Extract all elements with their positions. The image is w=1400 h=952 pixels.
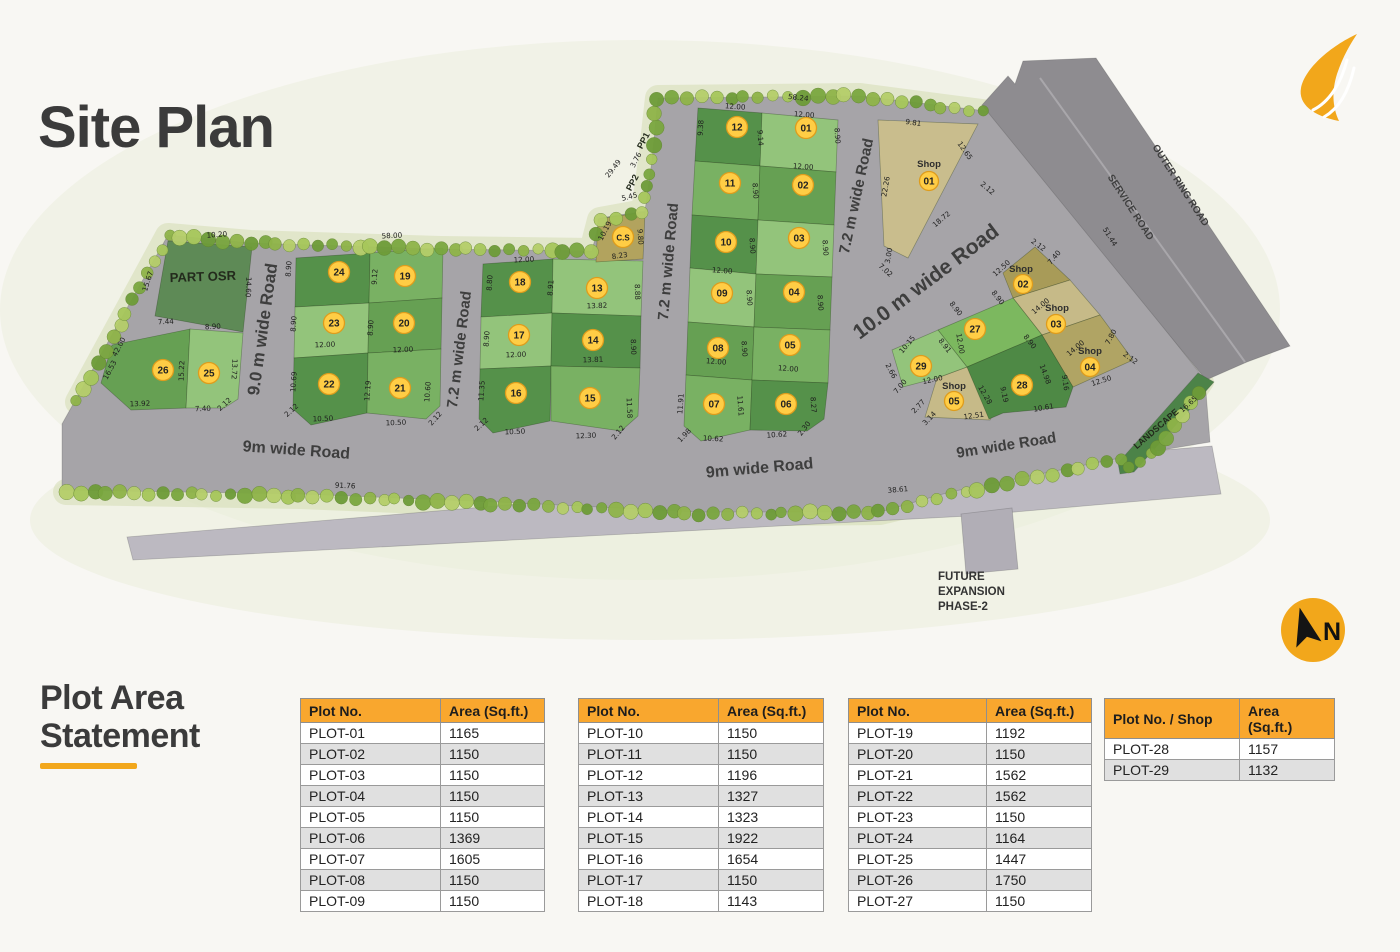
tree-icon bbox=[810, 88, 825, 103]
plot-12 bbox=[695, 108, 762, 166]
north-indicator: N bbox=[1281, 598, 1345, 662]
tree-icon bbox=[677, 507, 691, 521]
area-cell: 1150 bbox=[441, 786, 545, 807]
tree-icon bbox=[362, 239, 377, 254]
plot-no-cell: PLOT-09 bbox=[301, 891, 441, 912]
plot-marker-plot-01: 01 bbox=[796, 118, 817, 139]
dimension-label: 58.00 bbox=[381, 230, 402, 240]
col-header-plot-no: Plot No. bbox=[849, 699, 987, 723]
tree-icon bbox=[692, 509, 705, 522]
plot-no-cell: PLOT-05 bbox=[301, 807, 441, 828]
future-expansion-label: FUTURE bbox=[938, 571, 985, 583]
plot-marker-shop-03: 03 bbox=[1047, 315, 1066, 334]
tree-icon bbox=[776, 507, 787, 518]
area-cell: 1150 bbox=[441, 807, 545, 828]
tree-icon bbox=[533, 244, 544, 255]
col-header-area: Area (Sq.ft.) bbox=[441, 699, 545, 723]
shop-label: Shop bbox=[1078, 346, 1102, 357]
table-row: PLOT-101150 bbox=[579, 723, 824, 744]
tree-icon bbox=[377, 241, 392, 256]
page-title: Site Plan bbox=[38, 94, 274, 161]
table-row: PLOT-011165 bbox=[301, 723, 545, 744]
tree-icon bbox=[1071, 462, 1084, 475]
tree-icon bbox=[444, 495, 459, 510]
tree-icon bbox=[984, 478, 999, 493]
plot-marker-plot-12: 12 bbox=[727, 117, 748, 138]
plot-number-text: 13 bbox=[591, 283, 603, 294]
area-cell: 1562 bbox=[987, 786, 1092, 807]
tree-icon bbox=[572, 501, 583, 512]
plot-number-text: 01 bbox=[800, 123, 812, 134]
tree-icon bbox=[969, 483, 985, 499]
plot-no-cell: PLOT-25 bbox=[849, 849, 987, 870]
plot-no-cell: PLOT-08 bbox=[301, 870, 441, 891]
tree-icon bbox=[306, 491, 320, 505]
plot-number-text: 02 bbox=[797, 180, 809, 191]
table-row: PLOT-261750 bbox=[849, 870, 1092, 891]
plot-no-cell: PLOT-29 bbox=[1105, 760, 1240, 781]
area-cell: 1196 bbox=[719, 765, 824, 786]
col-header-area: Area (Sq.ft.) bbox=[719, 699, 824, 723]
plot-no-cell: PLOT-19 bbox=[849, 723, 987, 744]
dimension-label: 14.60 bbox=[244, 277, 254, 298]
plot-number-text: 17 bbox=[513, 330, 525, 341]
tree-icon bbox=[569, 243, 584, 258]
tree-icon bbox=[267, 488, 282, 503]
dimension-label: 13.81 bbox=[582, 355, 603, 365]
tree-icon bbox=[149, 256, 161, 268]
plot-marker-plot-cs: C.S bbox=[613, 227, 634, 248]
tree-icon bbox=[737, 90, 749, 102]
table-row: PLOT-281157 bbox=[1105, 739, 1335, 760]
tree-icon bbox=[680, 92, 694, 106]
tree-icon bbox=[542, 500, 554, 512]
dimension-label: 91.76 bbox=[335, 480, 356, 490]
col-header-plot-no: Plot No. / Shop bbox=[1105, 699, 1240, 739]
shop-label: Shop bbox=[1009, 264, 1033, 275]
logo-leaf-shape bbox=[1301, 34, 1357, 121]
tree-icon bbox=[245, 237, 259, 251]
table-row: PLOT-141323 bbox=[579, 807, 824, 828]
plot-area-statement: Plot Area Statement bbox=[40, 679, 275, 769]
tree-icon bbox=[934, 102, 946, 114]
tree-icon bbox=[978, 106, 989, 117]
plot-marker-plot-03: 03 bbox=[789, 228, 810, 249]
tree-icon bbox=[946, 488, 957, 499]
plot-no-cell: PLOT-12 bbox=[579, 765, 719, 786]
tree-icon bbox=[638, 503, 653, 518]
plot-area-table-2: Plot No.Area (Sq.ft.)PLOT-101150PLOT-111… bbox=[578, 698, 824, 912]
plot-number-text: C.S bbox=[616, 233, 630, 242]
dimension-label: 8.90 bbox=[205, 322, 222, 332]
area-cell: 1150 bbox=[441, 891, 545, 912]
tree-icon bbox=[1046, 469, 1060, 483]
plot-marker-plot-15: 15 bbox=[580, 388, 601, 409]
plot-number-text: 11 bbox=[725, 178, 736, 189]
plot-marker-plot-28: 28 bbox=[1012, 375, 1033, 396]
tree-icon bbox=[852, 89, 866, 103]
tree-icon bbox=[1159, 431, 1174, 446]
tree-icon bbox=[695, 90, 708, 103]
dimension-label: 8.90 bbox=[629, 339, 639, 356]
tree-icon bbox=[225, 489, 236, 500]
area-cell: 1922 bbox=[719, 828, 824, 849]
tree-icon bbox=[528, 498, 541, 511]
area-cell: 1150 bbox=[441, 765, 545, 786]
plot-marker-plot-04: 04 bbox=[784, 282, 805, 303]
tree-icon bbox=[403, 495, 414, 506]
tree-icon bbox=[886, 502, 899, 515]
shop-label: Shop bbox=[1045, 303, 1069, 314]
dimension-label: 8.90 bbox=[747, 238, 757, 255]
tree-icon bbox=[237, 488, 253, 504]
tree-icon bbox=[210, 490, 221, 501]
dimension-label: 8.90 bbox=[365, 319, 375, 336]
tree-icon bbox=[320, 489, 333, 502]
tree-icon bbox=[847, 505, 861, 519]
tree-icon bbox=[555, 244, 570, 259]
table-row: PLOT-201150 bbox=[849, 744, 1092, 765]
plot-no-cell: PLOT-18 bbox=[579, 891, 719, 912]
tree-icon bbox=[503, 244, 514, 255]
tree-icon bbox=[665, 90, 679, 104]
plot-no-cell: PLOT-27 bbox=[849, 891, 987, 912]
tree-icon bbox=[484, 498, 498, 512]
tree-icon bbox=[881, 92, 894, 105]
tree-icon bbox=[312, 240, 324, 252]
plot-marker-shop-02: 02 bbox=[1014, 275, 1033, 294]
area-cell: 1562 bbox=[987, 765, 1092, 786]
shop-label: Shop bbox=[942, 381, 966, 392]
dimension-label: 9.80 bbox=[635, 229, 645, 246]
dimension-label: 12.00 bbox=[513, 254, 534, 264]
plot-marker-plot-08: 08 bbox=[708, 338, 729, 359]
tree-icon bbox=[647, 106, 662, 121]
plot-number-text: 10 bbox=[720, 237, 732, 248]
plot-number-text: 05 bbox=[784, 340, 796, 351]
area-cell: 1323 bbox=[719, 807, 824, 828]
tree-icon bbox=[126, 293, 139, 306]
plot-number-text: 29 bbox=[915, 361, 927, 372]
table-row: PLOT-191192 bbox=[849, 723, 1092, 744]
table-row: PLOT-221562 bbox=[849, 786, 1092, 807]
dimension-label: 15.22 bbox=[177, 360, 187, 381]
plot-number-text: 26 bbox=[157, 365, 169, 376]
dimension-label: 9.12 bbox=[369, 269, 379, 286]
tree-icon bbox=[836, 87, 851, 102]
future-expansion-label: PHASE-2 bbox=[938, 601, 988, 613]
tree-icon bbox=[711, 91, 724, 104]
plot-marker-plot-20: 20 bbox=[394, 313, 415, 334]
plot-number-text: 22 bbox=[323, 379, 335, 390]
tree-icon bbox=[646, 154, 657, 165]
plot-marker-shop-01: 01 bbox=[920, 172, 939, 191]
dimension-label: 11.61 bbox=[735, 395, 745, 416]
dimension-label: 38.61 bbox=[887, 484, 908, 495]
dimension-label: 8.80 bbox=[484, 274, 494, 291]
table-row: PLOT-111150 bbox=[579, 744, 824, 765]
col-header-plot-no: Plot No. bbox=[579, 699, 719, 723]
page: Site Plan 10.2014.6015.6742.0016.537.448… bbox=[0, 0, 1400, 952]
col-header-area: Area (Sq.ft.) bbox=[1240, 699, 1335, 739]
plot-no-cell: PLOT-28 bbox=[1105, 739, 1240, 760]
tree-icon bbox=[142, 488, 155, 501]
dimension-label: 8.90 bbox=[283, 260, 293, 277]
plot-number-text: 15 bbox=[584, 393, 596, 404]
dimension-label: 9.14 bbox=[755, 130, 765, 147]
plot-marker-plot-10: 10 bbox=[716, 232, 737, 253]
tree-icon bbox=[895, 96, 908, 109]
table-row: PLOT-131327 bbox=[579, 786, 824, 807]
tree-icon bbox=[788, 506, 804, 522]
dimension-label: 12.00 bbox=[712, 265, 734, 275]
area-cell: 1157 bbox=[1240, 739, 1335, 760]
dimension-label: 11.91 bbox=[675, 393, 685, 414]
tree-icon bbox=[513, 499, 526, 512]
plot-number-text: 09 bbox=[716, 288, 728, 299]
tree-icon bbox=[252, 486, 267, 501]
tree-icon bbox=[364, 492, 376, 504]
plot-area-statement-heading: Plot Area Statement bbox=[40, 679, 275, 755]
plot-marker-plot-14: 14 bbox=[583, 330, 604, 351]
dimension-label: 12.00 bbox=[778, 363, 800, 373]
plot-number-text: 03 bbox=[1050, 319, 1062, 330]
area-cell: 1164 bbox=[987, 828, 1092, 849]
tree-icon bbox=[641, 180, 653, 192]
tree-icon bbox=[341, 241, 352, 252]
tree-icon bbox=[335, 491, 348, 504]
tree-icon bbox=[1123, 462, 1134, 473]
tree-icon bbox=[172, 230, 188, 246]
plot-area-table-1: Plot No.Area (Sq.ft.)PLOT-011165PLOT-021… bbox=[300, 698, 545, 912]
dimension-label: 8.27 bbox=[808, 397, 818, 414]
table-row: PLOT-181143 bbox=[579, 891, 824, 912]
table-row: PLOT-231150 bbox=[849, 807, 1092, 828]
area-cell: 1150 bbox=[987, 891, 1092, 912]
tree-icon bbox=[901, 500, 913, 512]
plot-number-text: 25 bbox=[203, 368, 215, 379]
tree-icon bbox=[269, 238, 282, 251]
tree-icon bbox=[406, 241, 420, 255]
col-header-plot-no: Plot No. bbox=[301, 699, 441, 723]
table-row: PLOT-151922 bbox=[579, 828, 824, 849]
dimension-label: 13.82 bbox=[586, 301, 607, 311]
plot-number-text: 03 bbox=[793, 233, 805, 244]
tree-icon bbox=[298, 238, 310, 250]
tree-icon bbox=[803, 504, 818, 519]
tree-icon bbox=[638, 192, 650, 204]
plot-marker-shop-04: 04 bbox=[1081, 358, 1100, 377]
table-row: PLOT-121196 bbox=[579, 765, 824, 786]
plot-no-cell: PLOT-13 bbox=[579, 786, 719, 807]
area-label: PART OSR bbox=[169, 268, 236, 285]
tree-icon bbox=[736, 506, 748, 518]
plot-number-text: 20 bbox=[398, 318, 410, 329]
dimension-label: 12.00 bbox=[505, 350, 526, 360]
tree-icon bbox=[420, 243, 434, 257]
tree-icon bbox=[435, 242, 448, 255]
tree-icon bbox=[415, 495, 431, 511]
plot-no-cell: PLOT-07 bbox=[301, 849, 441, 870]
tree-icon bbox=[931, 493, 943, 505]
plot-no-cell: PLOT-26 bbox=[849, 870, 987, 891]
plot-marker-plot-16: 16 bbox=[506, 383, 527, 404]
plot-no-cell: PLOT-22 bbox=[849, 786, 987, 807]
dimension-label: 9.38 bbox=[695, 119, 705, 136]
tree-icon bbox=[113, 485, 127, 499]
plot-number-text: 18 bbox=[514, 277, 526, 288]
tree-icon bbox=[653, 505, 667, 519]
plot-no-cell: PLOT-16 bbox=[579, 849, 719, 870]
dimension-label: 8.90 bbox=[820, 240, 830, 257]
dimension-label: 10.50 bbox=[312, 414, 333, 424]
tree-icon bbox=[391, 239, 406, 254]
tree-icon bbox=[866, 92, 880, 106]
area-cell: 1150 bbox=[719, 870, 824, 891]
plot-area-table-3: Plot No.Area (Sq.ft.)PLOT-191192PLOT-201… bbox=[848, 698, 1092, 912]
plot-no-cell: PLOT-24 bbox=[849, 828, 987, 849]
tree-icon bbox=[608, 502, 624, 518]
tree-icon bbox=[459, 242, 472, 255]
area-cell: 1150 bbox=[987, 807, 1092, 828]
tree-icon bbox=[722, 508, 734, 520]
plot-no-cell: PLOT-10 bbox=[579, 723, 719, 744]
plot-marker-plot-18: 18 bbox=[510, 272, 531, 293]
tree-icon bbox=[766, 509, 777, 520]
tree-icon bbox=[230, 234, 244, 248]
dimension-label: 8.88 bbox=[633, 284, 643, 301]
heading-underline-accent bbox=[40, 763, 137, 769]
tree-icon bbox=[186, 229, 201, 244]
tree-icon bbox=[582, 504, 593, 515]
dimension-label: 13.72 bbox=[230, 359, 240, 380]
plot-marker-plot-21: 21 bbox=[390, 378, 411, 399]
tree-icon bbox=[1000, 476, 1015, 491]
plot-marker-plot-19: 19 bbox=[395, 266, 416, 287]
tree-icon bbox=[649, 92, 663, 106]
plot-marker-plot-24: 24 bbox=[329, 262, 350, 283]
dimension-label: 8.90 bbox=[750, 183, 760, 200]
road-future-stub bbox=[961, 508, 1018, 574]
tree-icon bbox=[949, 102, 960, 113]
plot-no-cell: PLOT-20 bbox=[849, 744, 987, 765]
dimension-label: 10.62 bbox=[703, 433, 724, 443]
plot-marker-plot-05: 05 bbox=[780, 335, 801, 356]
dimension-label: 12.00 bbox=[725, 101, 747, 111]
plot-no-cell: PLOT-06 bbox=[301, 828, 441, 849]
tree-icon bbox=[832, 507, 846, 521]
dimension-label: 8.90 bbox=[744, 290, 754, 307]
plot-no-cell: PLOT-17 bbox=[579, 870, 719, 891]
area-cell: 1654 bbox=[719, 849, 824, 870]
dimension-label: 8.90 bbox=[815, 295, 825, 312]
table-row: PLOT-021150 bbox=[301, 744, 545, 765]
tree-icon bbox=[71, 395, 82, 406]
tree-icon bbox=[636, 207, 648, 219]
dimension-label: 11.35 bbox=[476, 380, 486, 401]
tree-icon bbox=[498, 497, 511, 510]
plot-number-text: 07 bbox=[708, 399, 720, 410]
tree-icon bbox=[910, 96, 923, 109]
brand-logo-icon bbox=[1301, 34, 1357, 121]
dimension-label: 8.90 bbox=[481, 330, 491, 347]
tree-icon bbox=[1015, 471, 1030, 486]
plot-marker-plot-22: 22 bbox=[319, 374, 340, 395]
area-cell: 1447 bbox=[987, 849, 1092, 870]
tree-icon bbox=[623, 504, 638, 519]
dimension-label: 8.90 bbox=[739, 341, 749, 358]
plot-number-text: 05 bbox=[948, 396, 960, 407]
plot-marker-plot-23: 23 bbox=[324, 313, 345, 334]
tree-icon bbox=[291, 488, 305, 502]
tree-icon bbox=[596, 503, 607, 514]
plot-no-cell: PLOT-15 bbox=[579, 828, 719, 849]
area-cell: 1150 bbox=[441, 870, 545, 891]
table-row: PLOT-081150 bbox=[301, 870, 545, 891]
area-cell: 1143 bbox=[719, 891, 824, 912]
plot-no-cell: PLOT-04 bbox=[301, 786, 441, 807]
tree-icon bbox=[1101, 455, 1113, 467]
dimension-label: 10.69 bbox=[288, 371, 298, 393]
plot-number-text: 21 bbox=[394, 383, 406, 394]
dimension-label: 7.44 bbox=[158, 317, 175, 327]
tree-icon bbox=[59, 484, 75, 500]
plot-marker-plot-25: 25 bbox=[199, 363, 220, 384]
plot-number-text: 01 bbox=[923, 176, 935, 187]
dimension-label: 12.00 bbox=[793, 161, 815, 171]
plot-no-cell: PLOT-11 bbox=[579, 744, 719, 765]
plot-marker-plot-02: 02 bbox=[793, 175, 814, 196]
table-row: PLOT-161654 bbox=[579, 849, 824, 870]
area-cell: 1132 bbox=[1240, 760, 1335, 781]
tree-icon bbox=[707, 507, 720, 520]
plot-area-table-4: Plot No. / ShopArea (Sq.ft.)PLOT-281157P… bbox=[1104, 698, 1335, 781]
plot-number-text: 06 bbox=[780, 399, 792, 410]
table-row: PLOT-071605 bbox=[301, 849, 545, 870]
tree-icon bbox=[1086, 457, 1099, 470]
dimension-label: 8.90 bbox=[832, 128, 842, 145]
table-row: PLOT-061369 bbox=[301, 828, 545, 849]
plot-marker-plot-11: 11 bbox=[720, 173, 741, 194]
tree-icon bbox=[916, 495, 928, 507]
plot-no-cell: PLOT-03 bbox=[301, 765, 441, 786]
tree-icon bbox=[1135, 457, 1146, 468]
tree-icon bbox=[196, 489, 208, 501]
plot-number-text: 23 bbox=[328, 318, 340, 329]
dimension-label: 10.50 bbox=[504, 427, 525, 437]
area-cell: 1150 bbox=[441, 744, 545, 765]
area-cell: 1165 bbox=[441, 723, 545, 744]
table-row: PLOT-031150 bbox=[301, 765, 545, 786]
north-letter: N bbox=[1323, 618, 1341, 646]
table-row: PLOT-291132 bbox=[1105, 760, 1335, 781]
area-cell: 1327 bbox=[719, 786, 824, 807]
tree-icon bbox=[115, 319, 129, 333]
plot-number-text: 24 bbox=[333, 267, 345, 278]
tree-icon bbox=[84, 370, 99, 385]
tree-icon bbox=[459, 494, 474, 509]
plot-number-text: 12 bbox=[731, 122, 743, 133]
plot-number-text: 27 bbox=[969, 324, 981, 335]
tree-icon bbox=[871, 504, 884, 517]
plot-marker-plot-07: 07 bbox=[704, 394, 725, 415]
dimension-label: 10.20 bbox=[206, 229, 228, 239]
tree-icon bbox=[327, 239, 338, 250]
plot-number-text: 04 bbox=[1084, 362, 1096, 373]
dimension-label: 10.62 bbox=[766, 429, 787, 439]
dimension-label: 13.92 bbox=[129, 399, 150, 409]
plot-marker-plot-29: 29 bbox=[911, 356, 932, 377]
